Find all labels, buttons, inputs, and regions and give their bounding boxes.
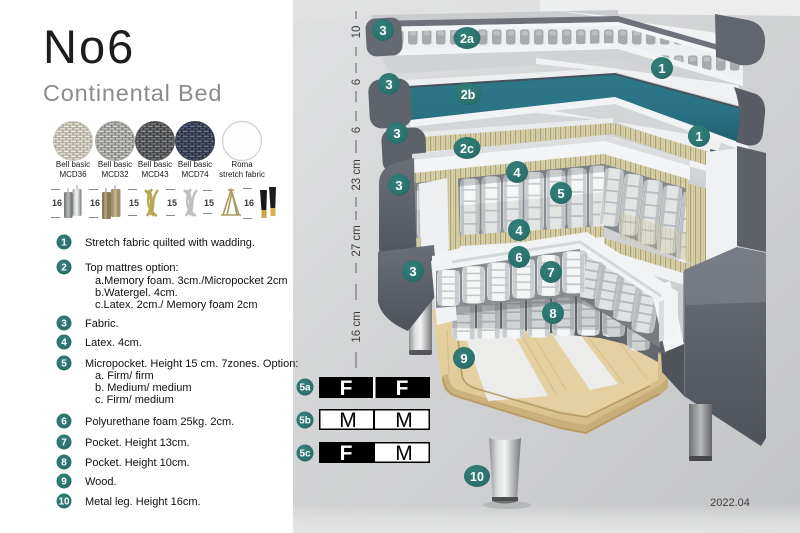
svg-text:5: 5 — [557, 186, 564, 201]
svg-text:2: 2 — [61, 263, 67, 274]
svg-text:6: 6 — [351, 127, 363, 133]
svg-text:7: 7 — [547, 265, 554, 280]
svg-text:15: 15 — [129, 198, 139, 208]
svg-text:9: 9 — [61, 477, 67, 488]
svg-text:Stretch fabric quilted with wa: Stretch fabric quilted with wadding. — [85, 237, 255, 249]
svg-text:3: 3 — [409, 264, 416, 279]
svg-text:2b: 2b — [461, 88, 476, 102]
svg-text:10: 10 — [58, 497, 70, 508]
svg-text:1: 1 — [658, 61, 665, 76]
svg-text:Bell basic: Bell basic — [56, 160, 90, 169]
svg-text:F: F — [396, 377, 409, 400]
svg-text:b.Watergel. 4cm.: b.Watergel. 4cm. — [95, 287, 178, 299]
svg-text:1: 1 — [61, 238, 67, 249]
svg-text:Wood.: Wood. — [85, 476, 117, 488]
svg-text:6: 6 — [351, 79, 363, 85]
svg-text:F: F — [340, 442, 353, 465]
svg-text:10: 10 — [351, 26, 363, 39]
svg-text:16 cm: 16 cm — [351, 311, 363, 342]
svg-text:16: 16 — [90, 198, 100, 208]
svg-text:Top mattres option:: Top mattres option: — [85, 262, 179, 274]
svg-text:MCD32: MCD32 — [101, 170, 129, 179]
svg-text:Bell basic: Bell basic — [178, 160, 212, 169]
svg-text:5c: 5c — [299, 449, 311, 460]
svg-text:MCD43: MCD43 — [141, 170, 169, 179]
svg-text:2c: 2c — [460, 142, 474, 156]
svg-text:3: 3 — [395, 178, 402, 193]
svg-text:Metal leg. Height 16cm.: Metal leg. Height 16cm. — [85, 496, 201, 508]
svg-text:5b: 5b — [299, 416, 311, 427]
svg-text:4: 4 — [61, 338, 67, 349]
svg-text:Fabric.: Fabric. — [85, 318, 119, 330]
svg-text:Polyurethane foam 25kg. 2cm.: Polyurethane foam 25kg. 2cm. — [85, 416, 234, 428]
svg-text:6: 6 — [515, 250, 522, 265]
svg-text:15: 15 — [204, 198, 214, 208]
svg-text:10: 10 — [470, 470, 484, 484]
svg-text:3: 3 — [393, 126, 400, 141]
svg-text:c.Latex. 2cm./ Memory foam 2cm: c.Latex. 2cm./ Memory foam 2cm — [95, 299, 258, 311]
svg-text:M: M — [339, 409, 357, 432]
svg-text:5: 5 — [61, 359, 67, 370]
svg-text:Bell basic: Bell basic — [138, 160, 172, 169]
svg-text:stretch fabric: stretch fabric — [219, 170, 265, 179]
svg-text:3: 3 — [385, 77, 392, 92]
svg-text:c. Firm/ medium: c. Firm/ medium — [95, 394, 174, 406]
svg-text:2022.04: 2022.04 — [710, 497, 750, 509]
svg-text:6: 6 — [61, 417, 67, 428]
svg-text:F: F — [340, 377, 353, 400]
svg-text:4: 4 — [515, 223, 523, 238]
svg-text:M: M — [395, 409, 413, 432]
svg-text:a. Firm/ firm: a. Firm/ firm — [95, 370, 154, 382]
svg-text:16: 16 — [52, 198, 62, 208]
svg-text:Continental Bed: Continental Bed — [43, 80, 222, 106]
svg-text:4: 4 — [513, 165, 521, 180]
svg-text:1: 1 — [695, 129, 702, 144]
svg-text:Micropocket. Height 15 cm. 7zo: Micropocket. Height 15 cm. 7zones. Optio… — [85, 358, 298, 370]
svg-text:2a: 2a — [460, 32, 475, 46]
svg-text:27 cm: 27 cm — [351, 225, 363, 256]
svg-text:Roma: Roma — [231, 160, 253, 169]
svg-text:23 cm: 23 cm — [351, 159, 363, 190]
svg-text:3: 3 — [379, 23, 386, 38]
svg-text:5a: 5a — [299, 383, 311, 394]
svg-text:Latex. 4cm.: Latex. 4cm. — [85, 337, 142, 349]
svg-text:MCD36: MCD36 — [59, 170, 87, 179]
svg-text:a.Memory foam. 3cm./Micropocke: a.Memory foam. 3cm./Micropocket 2cm — [95, 275, 288, 287]
svg-text:M: M — [395, 442, 413, 465]
svg-text:9: 9 — [460, 351, 467, 366]
svg-text:15: 15 — [167, 198, 177, 208]
svg-text:16: 16 — [244, 198, 254, 208]
svg-text:No6: No6 — [43, 20, 135, 73]
svg-text:3: 3 — [61, 319, 67, 330]
svg-text:8: 8 — [61, 458, 67, 469]
svg-text:Bell basic: Bell basic — [98, 160, 132, 169]
svg-text:7: 7 — [61, 438, 67, 449]
svg-text:Pocket. Height 10cm.: Pocket. Height 10cm. — [85, 457, 190, 469]
svg-text:Pocket. Height 13cm.: Pocket. Height 13cm. — [85, 437, 190, 449]
svg-text:8: 8 — [549, 306, 556, 321]
svg-text:MCD74: MCD74 — [181, 170, 209, 179]
svg-text:b. Medium/ medium: b. Medium/ medium — [95, 382, 192, 394]
